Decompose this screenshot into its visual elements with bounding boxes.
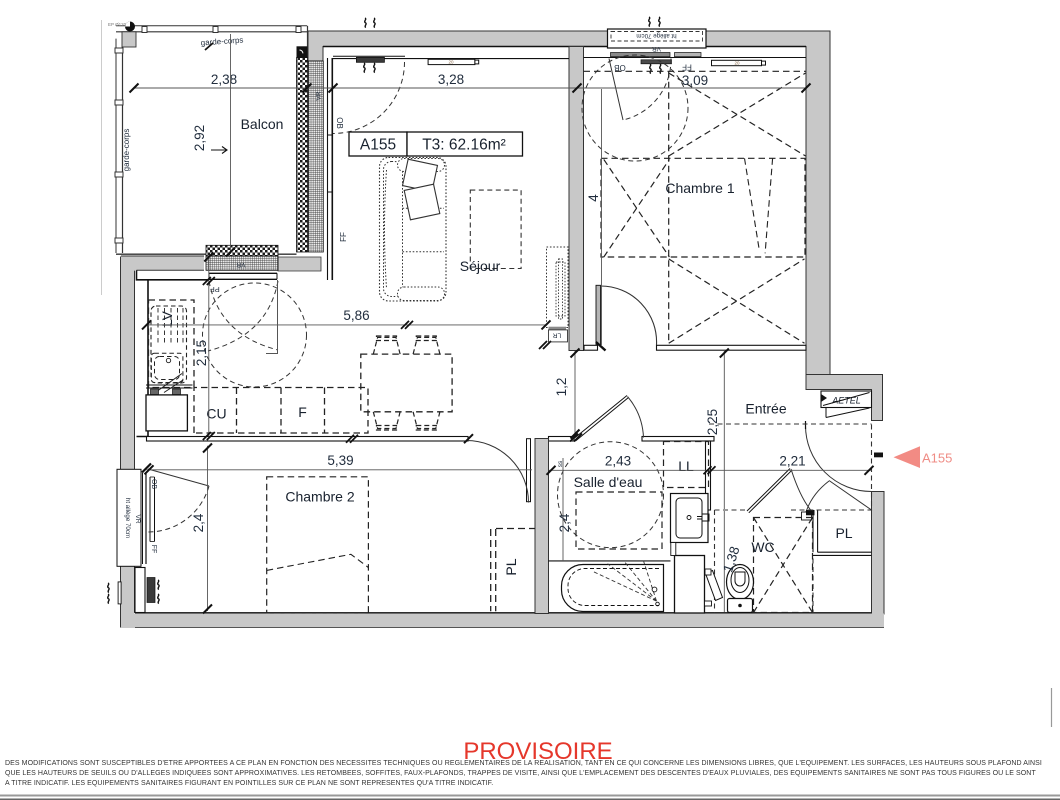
svg-text:2,4: 2,4 [191, 513, 206, 532]
svg-text:F: F [298, 404, 307, 420]
svg-text:2,25: 2,25 [705, 409, 720, 435]
svg-text:OB: OB [614, 63, 626, 72]
svg-text:A TITRE INDICATIF. LES EQUIPEM: A TITRE INDICATIF. LES EQUIPEMENTS SANIT… [5, 780, 493, 787]
svg-text:5,39: 5,39 [327, 453, 353, 468]
svg-text:VR: VR [652, 45, 661, 52]
svg-text:Chambre 1: Chambre 1 [665, 180, 734, 196]
svg-text:WC: WC [751, 539, 774, 555]
svg-text:LL: LL [678, 458, 694, 474]
svg-text:OB: OB [335, 117, 344, 129]
svg-text:OB: OB [150, 479, 157, 489]
svg-text:2,21: 2,21 [779, 454, 805, 469]
svg-text:garde-corps: garde-corps [122, 129, 131, 172]
svg-text:Chambre 2: Chambre 2 [285, 489, 354, 505]
svg-text:CU: CU [206, 406, 226, 422]
svg-text:A155: A155 [360, 137, 396, 154]
svg-text:Entrée: Entrée [745, 401, 786, 417]
svg-text:Salle d'eau: Salle d'eau [574, 474, 643, 490]
svg-text:AETEL: AETEL [831, 396, 861, 406]
svg-text:2,4: 2,4 [557, 513, 572, 532]
svg-text:3,28: 3,28 [438, 72, 464, 87]
svg-text:Séjour: Séjour [460, 258, 501, 274]
svg-text:2,38: 2,38 [211, 72, 237, 87]
svg-text:ht allège 70cm: ht allège 70cm [636, 32, 676, 39]
svg-text:VR: VR [236, 261, 245, 268]
svg-text:A155: A155 [922, 451, 952, 466]
svg-text:ht allège 70cm: ht allège 70cm [124, 498, 131, 538]
svg-text:T3: 62.16m²: T3: 62.16m² [422, 137, 506, 154]
svg-text:2,92: 2,92 [192, 125, 207, 151]
svg-text:FF: FF [339, 232, 348, 242]
svg-text:LV: LV [160, 311, 175, 327]
svg-text:QUE LES HAUTEURS DE SEUILS OU: QUE LES HAUTEURS DE SEUILS OU D'ALLEGES … [5, 770, 1036, 777]
svg-text:FF: FF [150, 545, 157, 554]
svg-text:LR: LR [553, 332, 562, 339]
svg-text:DES MODIFICATIONS SONT SUSCEPT: DES MODIFICATIONS SONT SUSCEPTIBLES D'ET… [5, 760, 1042, 767]
svg-text:2,43: 2,43 [605, 454, 631, 469]
svg-text:EP Ø120: EP Ø120 [108, 22, 127, 27]
svg-text:3,09: 3,09 [682, 73, 708, 88]
svg-text:20: 20 [734, 61, 740, 66]
svg-text:VR: VR [316, 91, 323, 100]
svg-text:Balcon: Balcon [241, 116, 284, 132]
svg-text:20: 20 [448, 60, 454, 65]
svg-text:PL: PL [835, 525, 852, 541]
svg-text:PL: PL [503, 558, 519, 575]
svg-text:5,86: 5,86 [343, 308, 369, 323]
svg-text:4: 4 [586, 194, 601, 202]
svg-text:2,15: 2,15 [194, 340, 209, 366]
svg-text:1,2: 1,2 [554, 378, 569, 397]
svg-text:FF: FF [682, 63, 692, 72]
svg-text:VR: VR [134, 514, 141, 523]
